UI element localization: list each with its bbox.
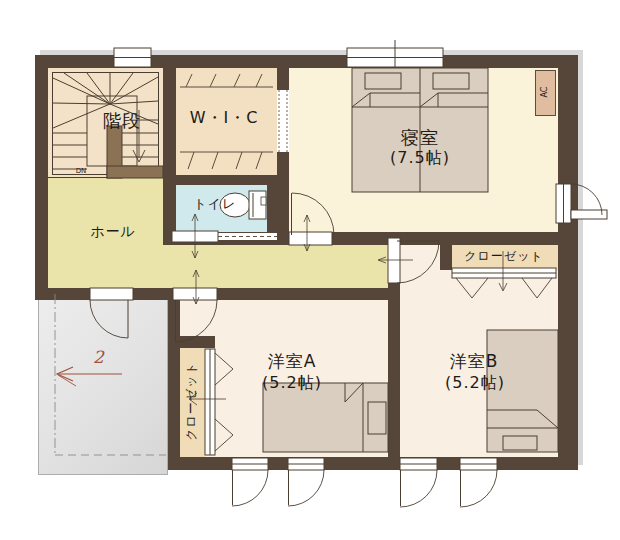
wic-label: W・I・C: [190, 110, 259, 126]
room-b-size: (5.2帖): [445, 375, 505, 391]
window-bedroom-right: [556, 184, 607, 223]
floor-plan: 階段 DN W・I・C 寝室 (7.5帖) トイレ ホール クローゼット 洋室A…: [0, 0, 620, 540]
door-room-b: [388, 238, 439, 283]
stairs-dn-label: DN: [76, 168, 87, 175]
window-room-a-1: [232, 458, 268, 506]
hall-label: ホール: [90, 224, 136, 238]
floor-number-label: 2: [93, 349, 105, 366]
door-room-a: [173, 288, 217, 342]
flow-arrows: [192, 214, 413, 304]
closet-b-label: クローゼット: [464, 250, 543, 262]
bedroom-label: 寝室: [401, 129, 439, 147]
closet-a-label: クローゼット: [185, 361, 197, 440]
window-stairs-top: [114, 48, 151, 67]
door-balcony: [90, 288, 133, 338]
stairs-label: 階段: [103, 112, 141, 130]
floorplan-linework: [0, 0, 620, 540]
toilet-label: トイレ: [194, 197, 237, 210]
room-a-label: 洋室A: [268, 353, 317, 370]
room-a-size: (5.2帖): [262, 375, 322, 391]
wic-opening: [277, 90, 289, 152]
window-room-b-1: [400, 458, 437, 507]
bed-icon-room-a: [263, 383, 388, 452]
window-bedroom-top: [347, 40, 443, 67]
window-room-a-2: [288, 458, 324, 506]
window-room-b-2: [460, 458, 497, 507]
floor-arrow-icon: [57, 367, 122, 386]
room-b-label: 洋室B: [450, 353, 499, 370]
ac-label: AC: [541, 87, 549, 98]
door-bedroom: [289, 193, 334, 245]
toilet-sliding-door: [172, 231, 277, 242]
bedroom-size: (7.5帖): [390, 150, 450, 166]
